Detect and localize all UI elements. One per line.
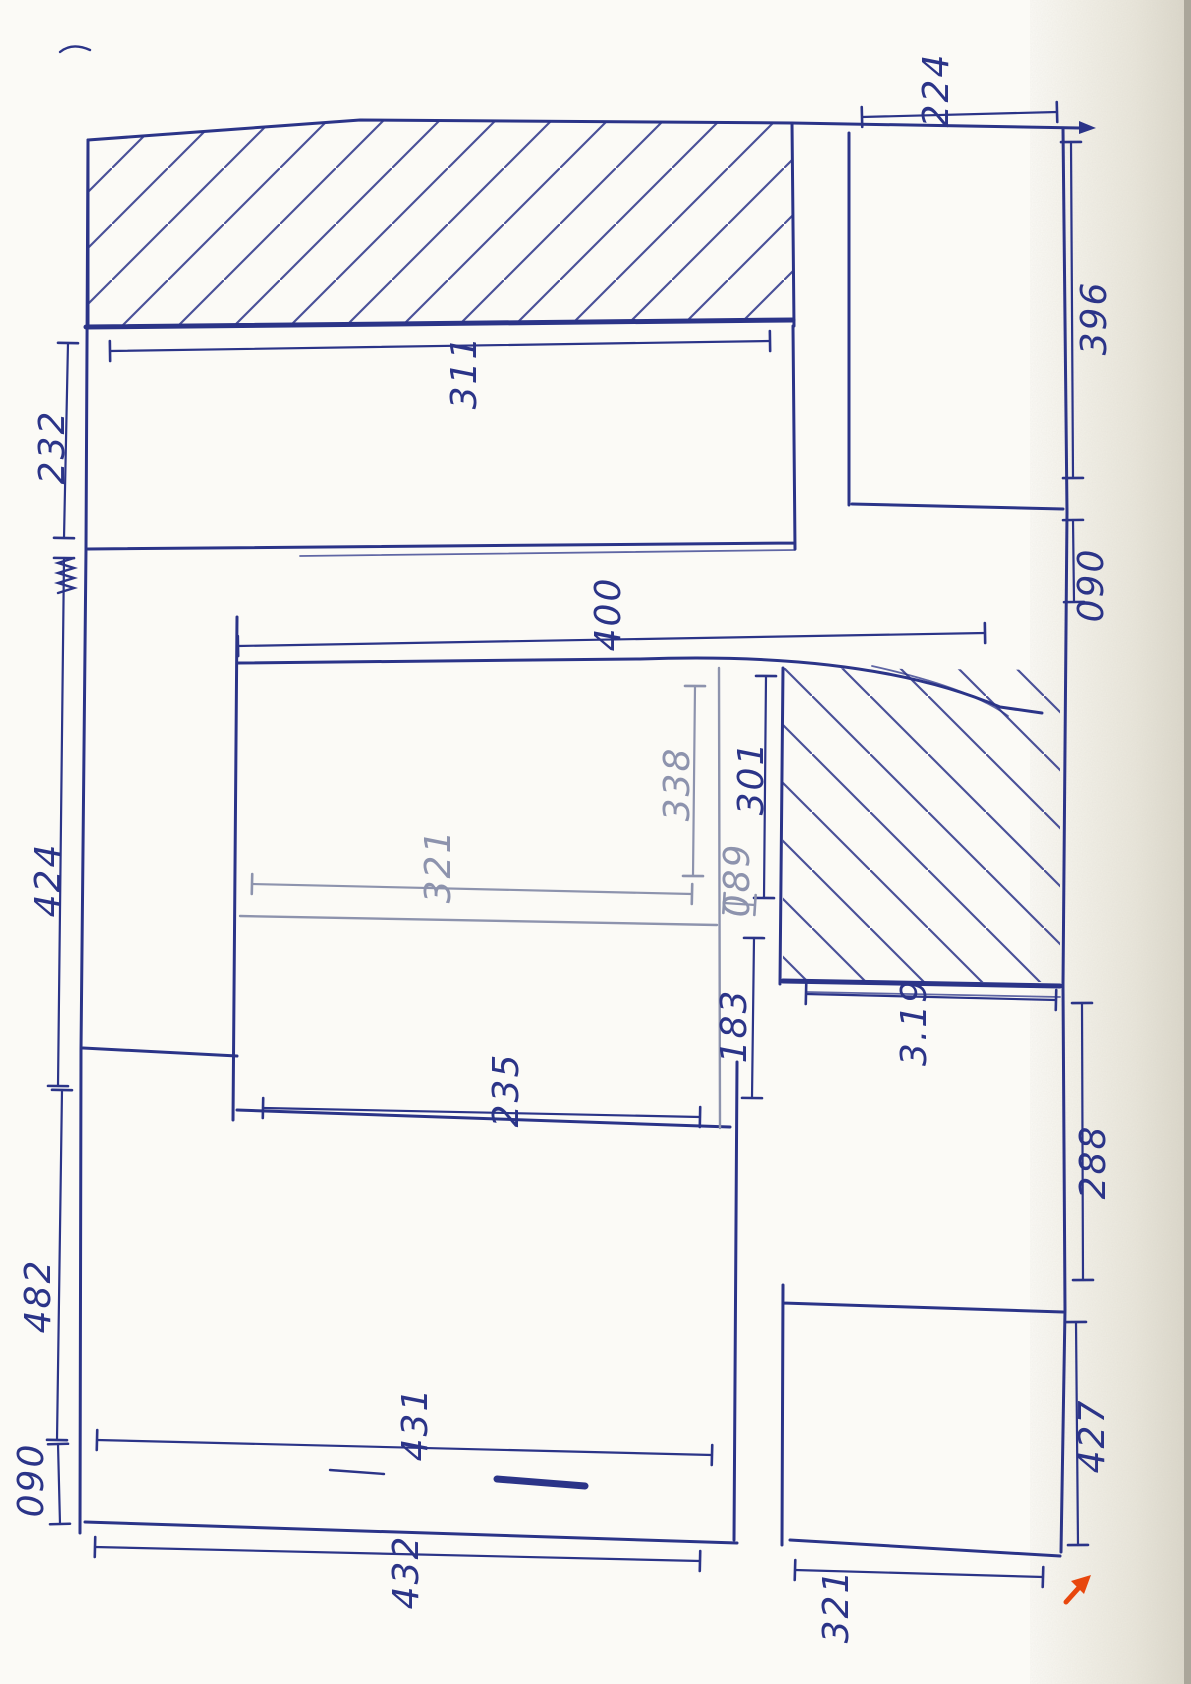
dim-label-338: 338 — [657, 747, 698, 822]
dim-label-321m: 321 — [418, 829, 459, 904]
dim-label-431: 431 — [395, 1387, 436, 1462]
dim-label-301: 301 — [731, 741, 772, 816]
dim-label-321b: 321 — [816, 1569, 857, 1644]
dim-label-089: 089 — [717, 843, 758, 918]
dim-label-432: 432 — [386, 1535, 427, 1610]
dim-label-090l: 090 — [11, 1443, 52, 1518]
dim-tick-321b — [1043, 1567, 1044, 1587]
floor-plan-sketch: 2243112323960904004243213383010891833.19… — [0, 0, 1191, 1684]
lower-right-block-hatch — [783, 668, 1060, 982]
dim-label-090r: 090 — [1071, 548, 1112, 623]
dim-label-400: 400 — [588, 577, 629, 652]
dim-label-232: 232 — [32, 410, 73, 485]
dim-label-224: 224 — [916, 53, 957, 128]
dim-label-424: 424 — [28, 843, 69, 918]
paper-edge — [1184, 0, 1191, 1684]
dim-label-396: 396 — [1074, 281, 1115, 356]
dim-label-427: 427 — [1072, 1399, 1113, 1474]
dim-label-183: 183 — [714, 989, 755, 1064]
dim-label-319: 3.19 — [894, 978, 935, 1066]
scanned-sketch-page: 2243112323960904004243213383010891833.19… — [0, 0, 1191, 1684]
dim-tick-321b — [795, 1560, 796, 1580]
dim-label-235: 235 — [486, 1053, 527, 1128]
top-wall-hatch — [88, 121, 792, 326]
dim-label-482: 482 — [18, 1259, 59, 1334]
dim-label-288: 288 — [1073, 1125, 1114, 1200]
dim-tick-224 — [1057, 102, 1058, 122]
dim-label-311: 311 — [444, 335, 485, 410]
dim-tick-224 — [862, 107, 863, 127]
